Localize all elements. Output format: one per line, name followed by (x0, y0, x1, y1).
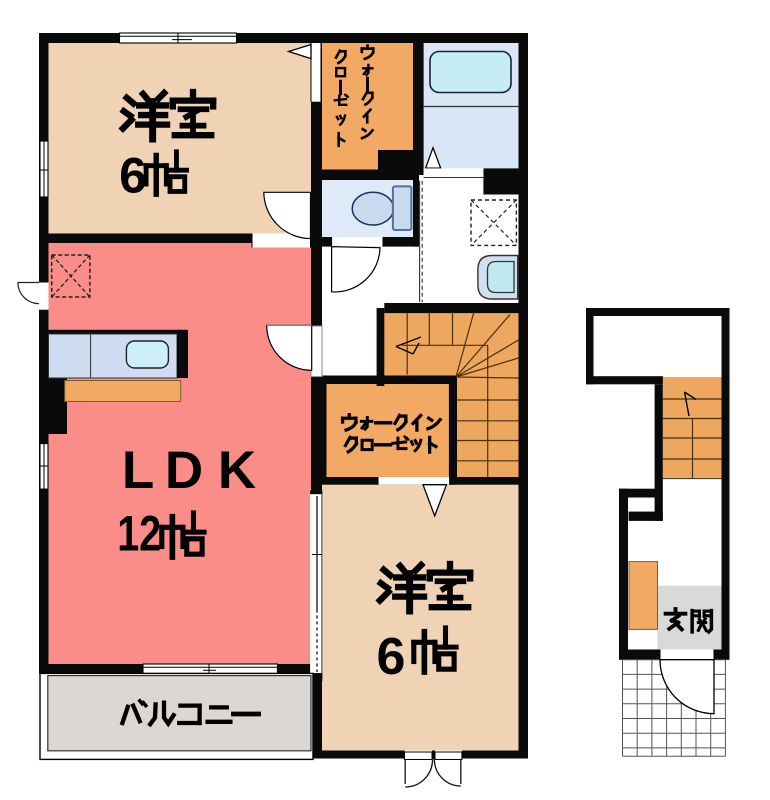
svg-text:6: 6 (119, 148, 147, 204)
svg-text:12: 12 (117, 506, 161, 562)
svg-text:D: D (165, 441, 203, 500)
svg-text:L: L (122, 441, 154, 500)
svg-text:6: 6 (377, 628, 406, 686)
svg-text:K: K (218, 441, 256, 500)
